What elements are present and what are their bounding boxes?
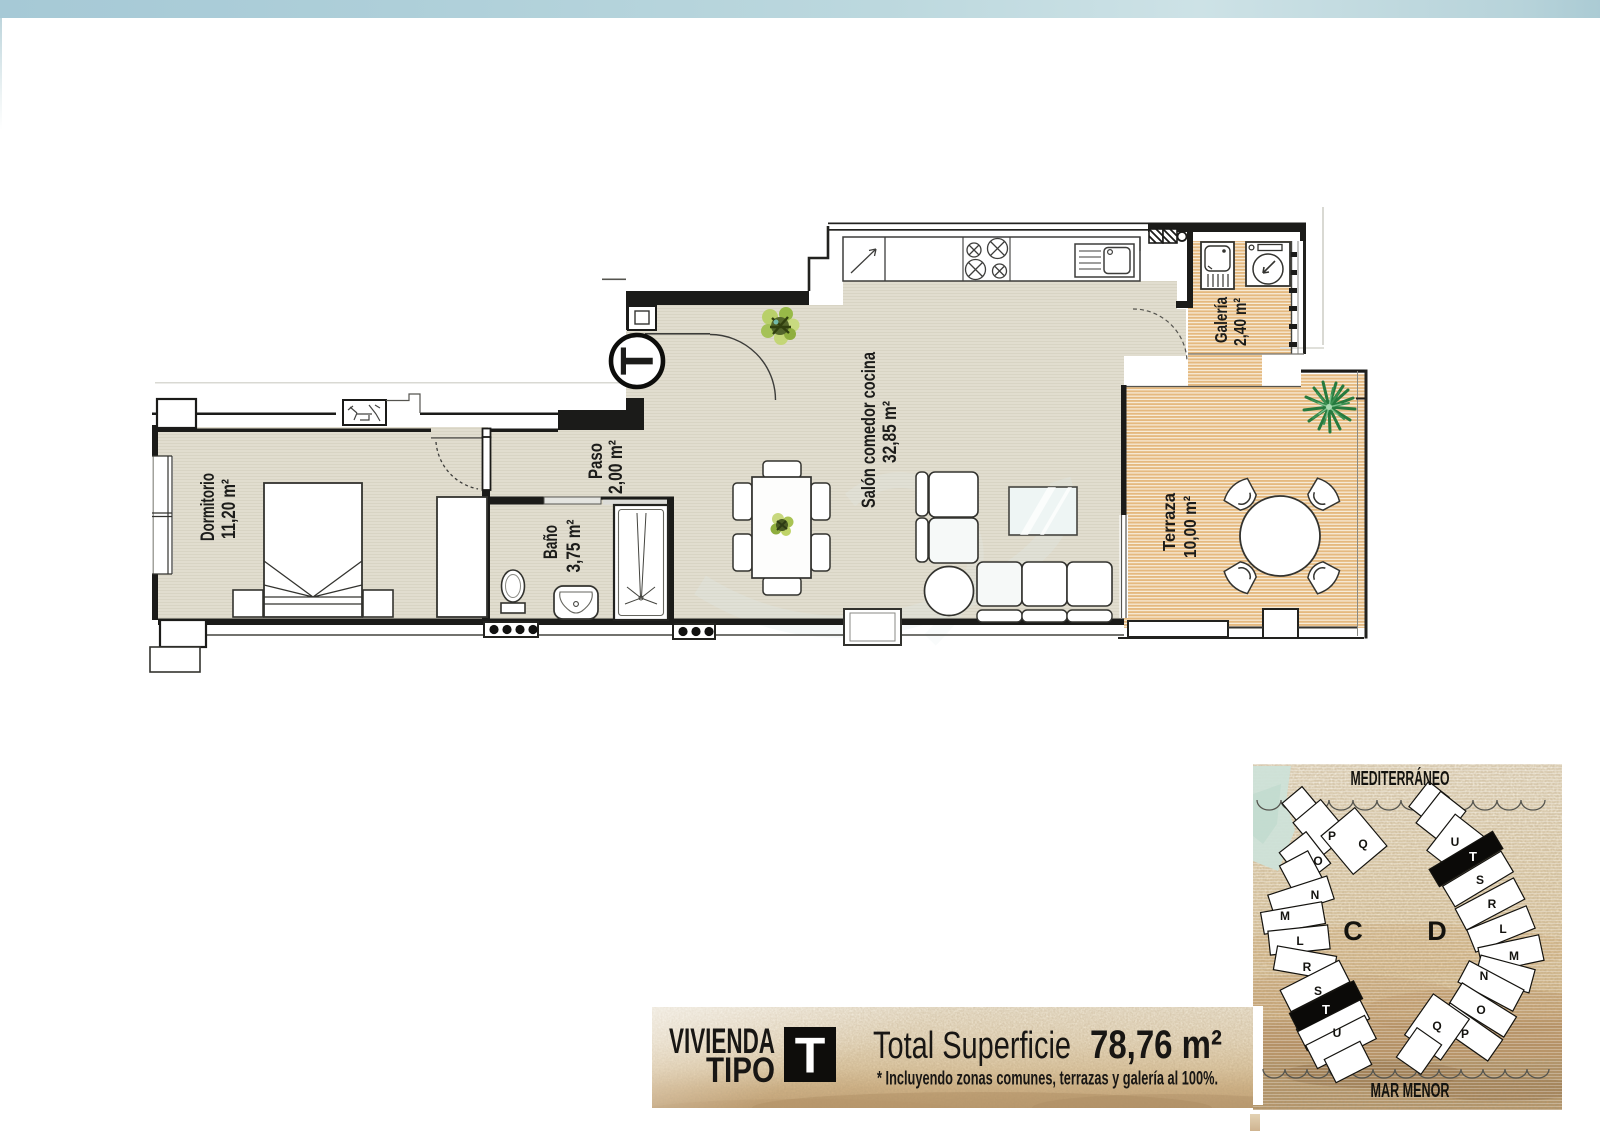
svg-text:L: L <box>1296 934 1303 948</box>
svg-text:P: P <box>1461 1027 1469 1041</box>
svg-text:2,00 m²: 2,00 m² <box>605 440 627 494</box>
svg-text:L: L <box>1499 922 1506 936</box>
svg-text:MAR MENOR: MAR MENOR <box>1371 1080 1450 1102</box>
svg-text:T: T <box>611 347 663 375</box>
svg-text:Q: Q <box>1358 837 1367 851</box>
svg-text:S: S <box>1314 984 1322 998</box>
svg-text:R: R <box>1488 897 1497 911</box>
svg-text:N: N <box>1480 969 1489 983</box>
svg-text:M: M <box>1280 909 1290 923</box>
svg-text:D: D <box>1427 916 1447 946</box>
svg-text:MEDITERRÁNEO: MEDITERRÁNEO <box>1351 767 1450 790</box>
svg-text:Q: Q <box>1432 1019 1441 1033</box>
svg-text:Terraza: Terraza <box>1159 493 1179 551</box>
svg-text:TIPO: TIPO <box>706 1051 775 1090</box>
svg-text:T: T <box>1469 849 1477 864</box>
svg-text:* Incluyendo zonas comunes, te: * Incluyendo zonas comunes, terrazas y g… <box>877 1069 1218 1090</box>
svg-text:N: N <box>1311 888 1320 902</box>
svg-text:Baño: Baño <box>540 525 562 559</box>
svg-text:Total Superficie: Total Superficie <box>873 1025 1071 1067</box>
svg-text:M: M <box>1509 949 1519 963</box>
svg-text:R: R <box>1303 960 1312 974</box>
svg-text:S: S <box>1476 873 1484 887</box>
svg-text:11,20 m²: 11,20 m² <box>218 479 240 539</box>
svg-text:Dormitorio: Dormitorio <box>197 473 219 541</box>
svg-text:Paso: Paso <box>585 443 607 479</box>
svg-text:P: P <box>1328 829 1336 843</box>
svg-text:3,75 m²: 3,75 m² <box>563 519 585 572</box>
svg-text:O: O <box>1476 1003 1485 1017</box>
svg-text:U: U <box>1333 1026 1342 1040</box>
svg-text:T: T <box>1322 1002 1330 1017</box>
svg-text:78,76 m²: 78,76 m² <box>1090 1023 1222 1067</box>
svg-text:O: O <box>1313 854 1322 868</box>
svg-text:C: C <box>1343 916 1363 946</box>
svg-text:32,85 m²: 32,85 m² <box>879 401 901 463</box>
svg-text:Salón comedor cocina: Salón comedor cocina <box>858 352 880 508</box>
svg-text:2,40 m²: 2,40 m² <box>1230 298 1250 346</box>
svg-text:Galería: Galería <box>1211 297 1231 343</box>
svg-text:T: T <box>795 1028 826 1084</box>
svg-text:10,00 m²: 10,00 m² <box>1180 496 1200 558</box>
svg-text:U: U <box>1451 835 1460 849</box>
